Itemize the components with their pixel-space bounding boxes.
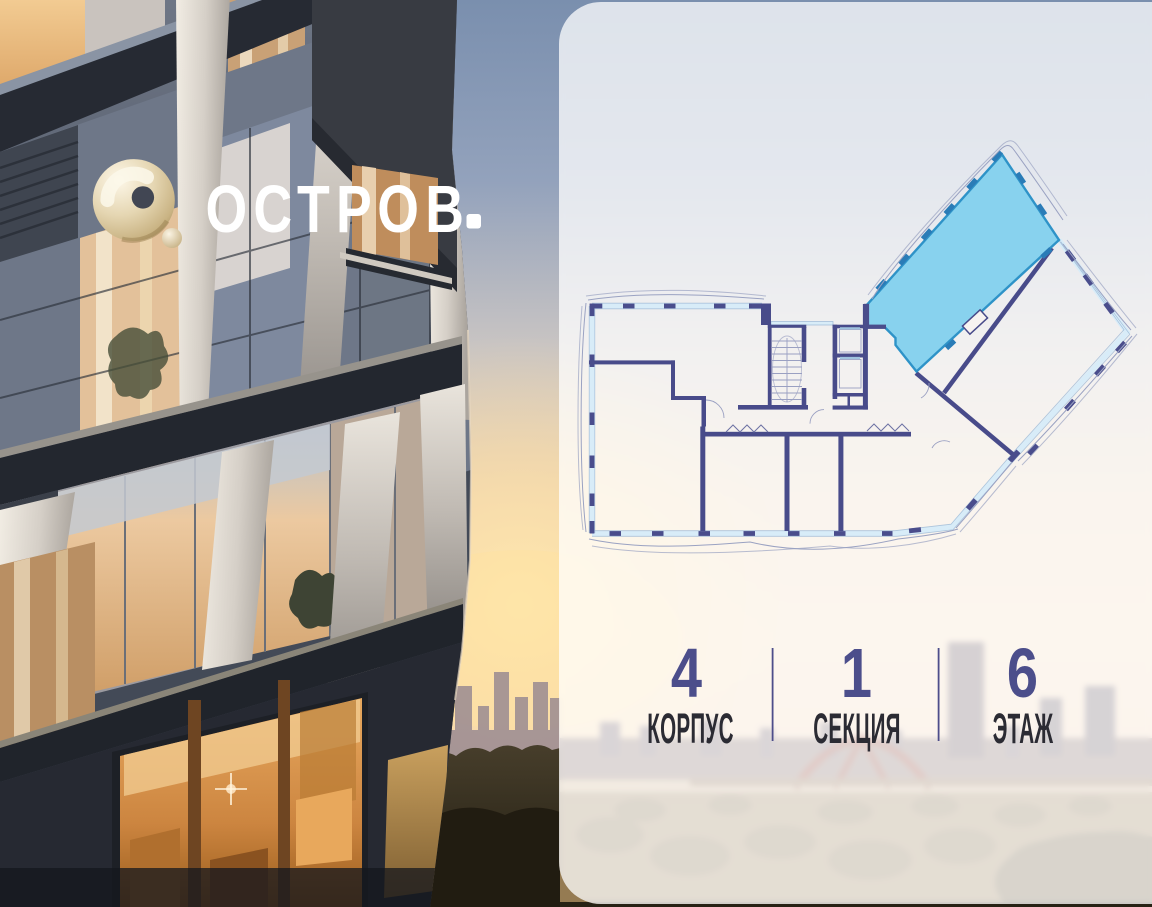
svg-text:КОРПУС: КОРПУС: [647, 705, 733, 753]
svg-text:ЭТАЖ: ЭТАЖ: [993, 705, 1054, 753]
svg-text:6: 6: [1007, 635, 1038, 712]
svg-text:4: 4: [671, 635, 702, 712]
svg-text:1: 1: [841, 635, 872, 712]
svg-text:СЕКЦИЯ: СЕКЦИЯ: [813, 705, 900, 753]
